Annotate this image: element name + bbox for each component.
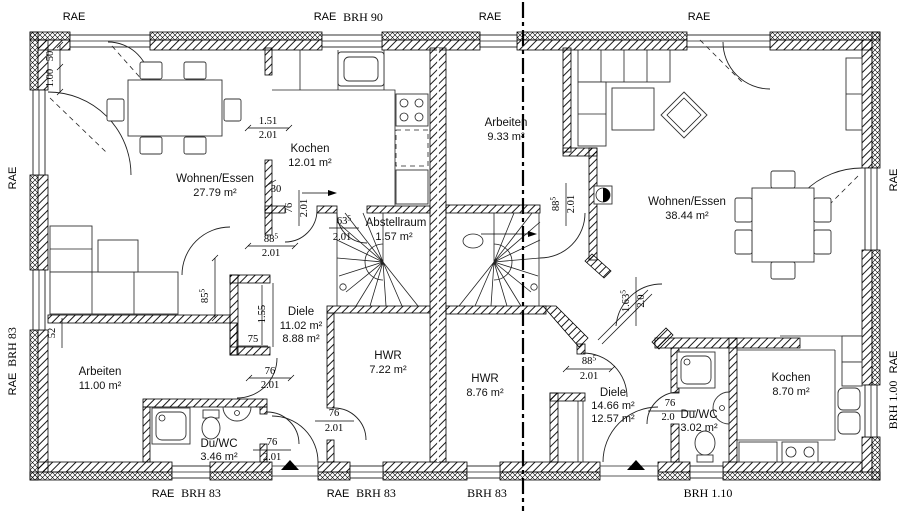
room-area-duwc-left: 3.46 m² <box>200 451 238 463</box>
dim-85-5: 855 <box>198 289 212 304</box>
room-area-wohnen-right: 38.44 m² <box>665 210 709 222</box>
party-wall <box>430 48 446 462</box>
dim-76-b: 76 <box>265 366 276 377</box>
room-area-hwr-left: 7.22 m² <box>369 364 407 376</box>
dim-201-f: 2.01 <box>325 423 343 434</box>
room-label-wohnen-right: Wohnen/Essen <box>648 196 726 208</box>
staircase-right <box>459 213 540 306</box>
room-label-hwr-left: HWR <box>374 350 401 362</box>
edge-label-brh83-bottom-1: BRH 83 <box>181 486 221 500</box>
room-area-duwc-right: 3.02 m² <box>680 422 718 434</box>
dim-201-i: 2.01 <box>580 371 598 382</box>
room-label-kochen-right: Kochen <box>771 372 810 384</box>
room-label-arbeiten-left: Arbeiten <box>79 366 122 378</box>
dim-201-e: 2.01 <box>261 380 279 391</box>
room-label-abstellraum: Abstellraum <box>366 217 427 229</box>
room-label-wohnen-left: Wohnen/Essen <box>176 173 254 185</box>
room-label-hwr-right: HWR <box>471 373 498 385</box>
edge-label-rae-top-4: RAE <box>688 11 711 23</box>
entrance-arrow-left <box>281 460 299 470</box>
edge-label-brh100-right: BRH 1.00 <box>886 381 900 430</box>
room-area-arbeiten-right: 9.33 m² <box>487 131 525 143</box>
dim-201-g: 2.01 <box>263 452 281 463</box>
room-label-diele-right: Diele <box>600 387 626 399</box>
room-label-diele-left: Diele <box>288 306 314 318</box>
room-label-arbeiten-right: Arbeiten <box>485 117 528 129</box>
edge-label-rae-right-2: RAE <box>888 351 900 374</box>
room-area-kochen-left: 12.01 m² <box>288 157 332 169</box>
dim-88-5-c: 885 <box>582 354 597 368</box>
entrance-arrow-right <box>627 460 645 470</box>
dim-163-5: 1.635 <box>619 290 633 312</box>
edge-label-rae-top-1: RAE <box>63 11 86 23</box>
room-label-duwc-left: Du/WC <box>200 438 237 450</box>
edge-label-rae-right-1: RAE <box>888 169 900 192</box>
dim-76-a: 76 <box>284 203 295 214</box>
edge-label-brh110-bottom: BRH 1.10 <box>684 486 733 500</box>
dim-201-c: 2.01 <box>333 232 351 243</box>
room-labels-right: Arbeiten 9.33 m² Wohnen/Essen 38.44 m² K… <box>466 117 810 434</box>
dim-30: 30 <box>271 184 282 195</box>
dim-20-a: 2.0 <box>636 294 647 307</box>
room-label-duwc-right: Du/WC <box>680 409 717 421</box>
dim-76-e: 76 <box>665 398 676 409</box>
floor-plan-page: Wohnen/Essen 27.79 m² Kochen 12.01 m² Ar… <box>0 0 920 513</box>
dim-50: 50 <box>45 51 56 62</box>
dim-63-5: 635 <box>337 214 352 228</box>
edge-label-brh90-top: BRH 90 <box>343 10 383 24</box>
room-area-abstellraum: 1.57 m² <box>375 231 413 243</box>
downpipe-symbol <box>594 186 612 204</box>
dim-201-a: 2.01 <box>259 130 277 141</box>
room-area-diele-right: 14.66 m² <box>591 400 635 412</box>
dim-201-b: 2.01 <box>299 199 310 217</box>
room-area-arbeiten-left: 11.00 m² <box>79 380 122 392</box>
edge-label-brh83-left: BRH 83 <box>5 327 19 367</box>
dim-201-d: 2.01 <box>262 248 280 259</box>
edge-label-brh83-bottom-2: BRH 83 <box>356 486 396 500</box>
edge-label-rae-top-2: RAE <box>314 11 337 23</box>
edge-label-rae-left-1: RAE <box>7 167 19 190</box>
dim-75: 75 <box>248 334 259 345</box>
edge-label-rae-bottom-1: RAE <box>152 488 175 500</box>
dim-201-h: 2.01 <box>566 195 577 213</box>
room-area-hwr-right: 8.76 m² <box>466 387 504 399</box>
dim-20-b: 2.0 <box>661 412 674 423</box>
dim-76-c: 76 <box>329 408 340 419</box>
dim-88-5-a: 885 <box>264 232 279 246</box>
dim-88-5-b: 885 <box>549 197 563 212</box>
room-label-kochen-left: Kochen <box>290 143 329 155</box>
room-area2-diele-right: 12.57 m² <box>591 413 635 425</box>
room-area2-diele-left: 8.88 m² <box>282 333 320 345</box>
dim-151: 1.51 <box>259 116 277 127</box>
dim-52: 52 <box>47 328 58 339</box>
edge-label-rae-left-2: RAE <box>7 373 19 396</box>
edge-label-rae-top-3: RAE <box>479 11 502 23</box>
room-area-kochen-right: 8.70 m² <box>772 386 810 398</box>
dim-100: 1.00 <box>45 69 56 87</box>
dim-76-d: 76 <box>267 437 278 448</box>
room-area-diele-left: 11.02 m² <box>280 320 323 332</box>
edge-label-brh83-bottom-3: BRH 83 <box>467 486 507 500</box>
dim-155: 1.55 <box>257 305 268 323</box>
floor-plan-drawing: Wohnen/Essen 27.79 m² Kochen 12.01 m² Ar… <box>0 0 920 513</box>
room-area-wohnen-left: 27.79 m² <box>193 187 237 199</box>
edge-label-rae-bottom-2: RAE <box>327 488 350 500</box>
